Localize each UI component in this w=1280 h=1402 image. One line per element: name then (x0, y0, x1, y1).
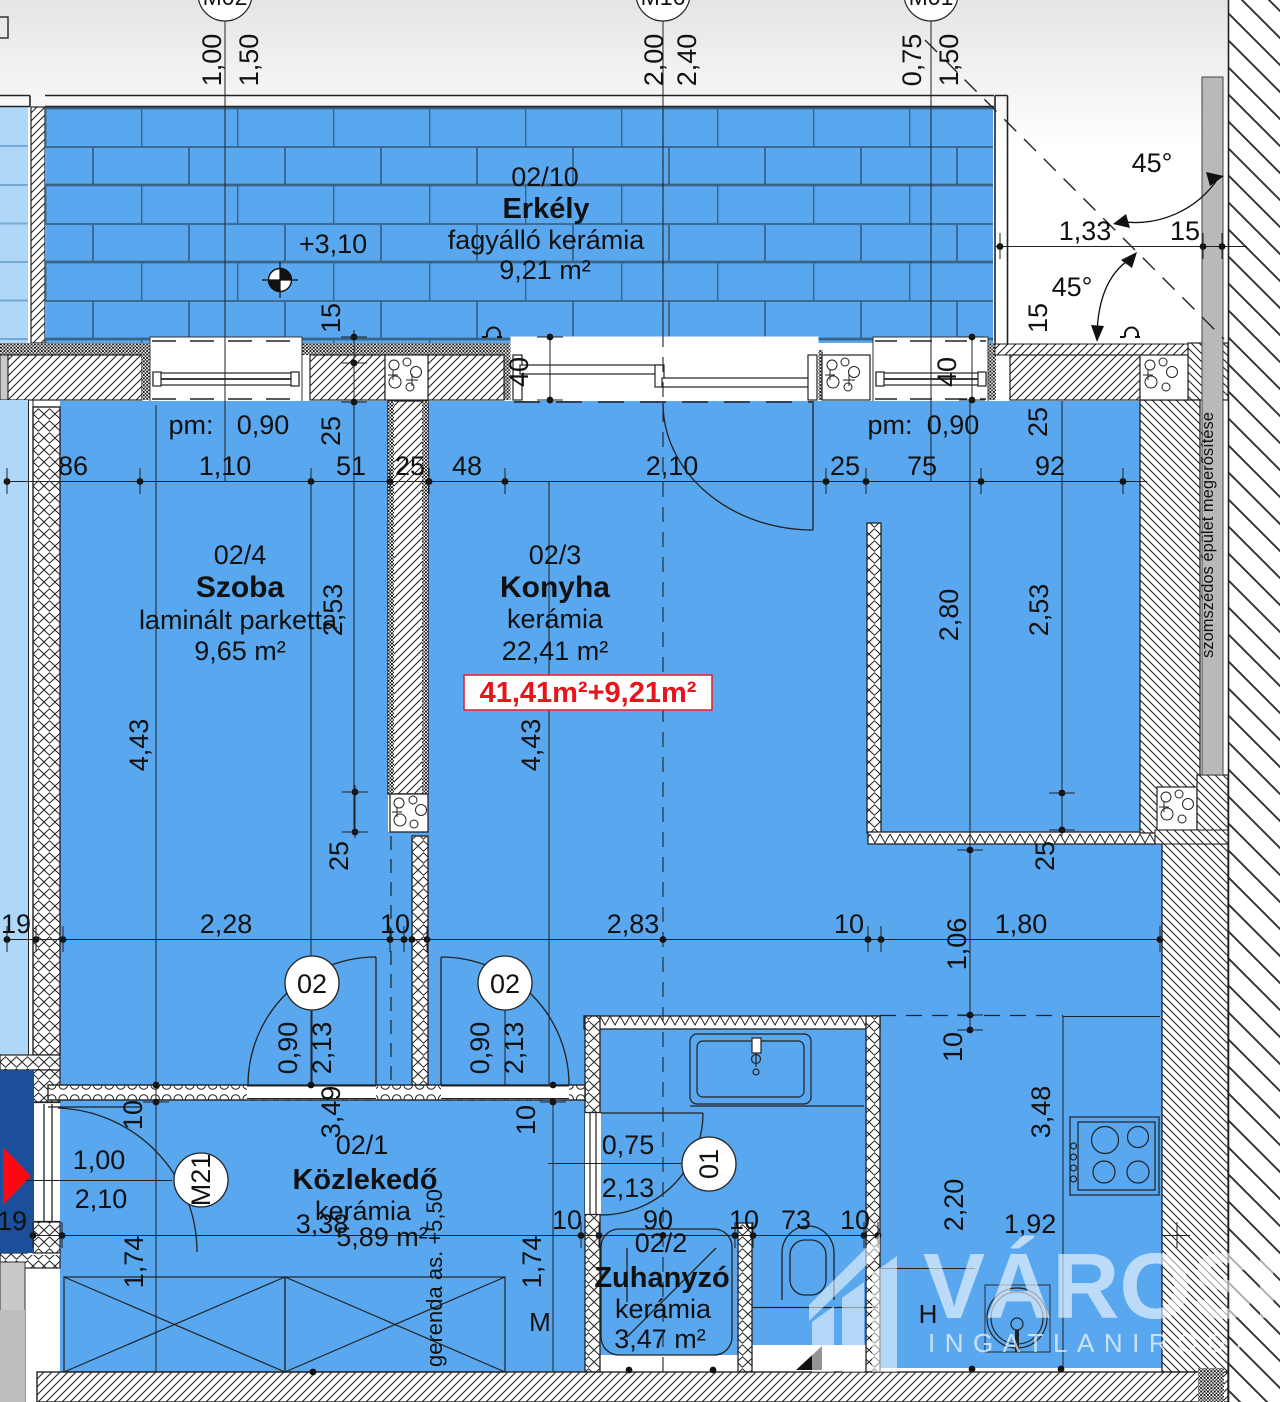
svg-text:2,83: 2,83 (607, 909, 660, 939)
svg-text:M02: M02 (203, 0, 248, 10)
svg-text:laminált parketta: laminált parketta (139, 605, 338, 635)
svg-text:22,41 m²: 22,41 m² (502, 636, 609, 666)
svg-text:2,13: 2,13 (499, 1022, 529, 1075)
svg-text:0,75: 0,75 (602, 1130, 655, 1160)
svg-text:25: 25 (395, 451, 425, 481)
svg-text:M16: M16 (641, 0, 686, 10)
svg-text:2,40: 2,40 (672, 34, 702, 87)
svg-text:45°: 45° (1052, 272, 1093, 302)
svg-text:2,80: 2,80 (934, 589, 964, 642)
svg-text:10: 10 (938, 1032, 968, 1062)
svg-text:02/3: 02/3 (529, 540, 582, 570)
svg-text:10: 10 (511, 1105, 541, 1135)
svg-text:86: 86 (58, 451, 88, 481)
svg-text:2,28: 2,28 (200, 909, 253, 939)
svg-text:3,47 m²: 3,47 m² (614, 1324, 706, 1354)
svg-text:10: 10 (380, 909, 410, 939)
svg-text:2,00: 2,00 (639, 34, 669, 87)
svg-text:kerámia: kerámia (507, 604, 604, 634)
svg-text:01: 01 (694, 1149, 724, 1179)
svg-text:0,90: 0,90 (927, 410, 980, 440)
svg-text:+3,10: +3,10 (299, 229, 367, 259)
svg-text:25: 25 (324, 841, 354, 871)
svg-text:2,53: 2,53 (318, 584, 348, 637)
svg-text:10: 10 (834, 909, 864, 939)
svg-text:1,06: 1,06 (942, 918, 972, 971)
svg-text:19: 19 (1, 909, 31, 939)
svg-text:2,20: 2,20 (939, 1179, 969, 1232)
svg-text:10: 10 (552, 1205, 582, 1235)
svg-text:2,10: 2,10 (75, 1184, 128, 1214)
svg-text:M: M (529, 1307, 551, 1337)
svg-text:1,74: 1,74 (517, 1236, 547, 1289)
svg-text:fagyálló kerámia: fagyálló kerámia (448, 225, 646, 255)
svg-text:Szoba: Szoba (196, 571, 285, 604)
svg-text:40: 40 (932, 357, 962, 387)
svg-text:0,90: 0,90 (273, 1022, 303, 1075)
svg-text:1,33: 1,33 (1059, 216, 1112, 246)
svg-text:VÁROSI: VÁROSI (923, 1234, 1280, 1338)
svg-text:15: 15 (316, 303, 346, 333)
svg-text:73: 73 (781, 1205, 811, 1235)
svg-text:92: 92 (1035, 451, 1065, 481)
svg-text:gerenda as. +5,50: gerenda as. +5,50 (422, 1189, 447, 1367)
svg-text:15: 15 (1023, 303, 1053, 333)
svg-text:M21: M21 (186, 1154, 216, 1207)
svg-text:szomszédos épület megerősítése: szomszédos épület megerősítése (1199, 412, 1217, 658)
svg-text:45°: 45° (1132, 148, 1173, 178)
svg-text:02: 02 (297, 969, 327, 999)
svg-text:1,50: 1,50 (934, 34, 964, 87)
svg-text:Konyha: Konyha (500, 571, 610, 604)
svg-text:4,43: 4,43 (516, 719, 546, 772)
svg-text:9,21 m²: 9,21 m² (499, 255, 591, 285)
svg-text:25: 25 (316, 416, 346, 446)
svg-text:0,90: 0,90 (237, 410, 290, 440)
svg-text:25: 25 (1030, 841, 1060, 871)
svg-text:2,13: 2,13 (602, 1173, 655, 1203)
svg-text:10: 10 (840, 1205, 870, 1235)
svg-text:10: 10 (729, 1205, 759, 1235)
svg-text:0,90: 0,90 (465, 1022, 495, 1075)
svg-text:2,53: 2,53 (1024, 584, 1054, 637)
svg-text:1,00: 1,00 (73, 1145, 126, 1175)
svg-text:Erkély: Erkély (502, 193, 589, 225)
svg-text:1,80: 1,80 (995, 909, 1048, 939)
svg-text:25: 25 (1023, 407, 1053, 437)
svg-text:0,75: 0,75 (897, 34, 927, 87)
svg-text:4,43: 4,43 (124, 719, 154, 772)
svg-text:kerámia: kerámia (615, 1294, 712, 1324)
svg-text:INGATLANIRODA: INGATLANIRODA (928, 1328, 1262, 1358)
svg-text:19: 19 (0, 1206, 27, 1236)
svg-text:3,48: 3,48 (1026, 1086, 1056, 1139)
svg-text:1,00: 1,00 (197, 34, 227, 87)
svg-text:51: 51 (336, 451, 366, 481)
svg-text:pm:: pm: (867, 410, 912, 440)
svg-text:1,74: 1,74 (119, 1236, 149, 1289)
svg-text:10: 10 (118, 1100, 148, 1130)
svg-text:pm:: pm: (168, 410, 213, 440)
svg-text:2,10: 2,10 (646, 451, 699, 481)
svg-text:40: 40 (504, 357, 534, 387)
svg-text:02/4: 02/4 (214, 540, 267, 570)
svg-text:9,65 m²: 9,65 m² (194, 636, 286, 666)
svg-text:M01: M01 (909, 0, 954, 10)
svg-text:3,49: 3,49 (316, 1086, 346, 1139)
svg-text:15: 15 (1170, 216, 1200, 246)
svg-text:Közlekedő: Közlekedő (292, 1164, 437, 1196)
svg-text:1,50: 1,50 (234, 34, 264, 87)
svg-text:02/10: 02/10 (511, 162, 579, 192)
svg-text:41,41m²+9,21m²: 41,41m²+9,21m² (480, 677, 697, 709)
svg-text:1,10: 1,10 (199, 451, 252, 481)
svg-text:75: 75 (907, 451, 937, 481)
svg-text:25: 25 (830, 451, 860, 481)
svg-text:Zuhanyzó: Zuhanyzó (594, 1262, 729, 1294)
svg-text:02/2: 02/2 (635, 1228, 688, 1258)
svg-text:48: 48 (452, 451, 482, 481)
svg-text:5,89 m²: 5,89 m² (336, 1222, 428, 1252)
svg-text:02: 02 (490, 969, 520, 999)
svg-text:2,13: 2,13 (307, 1022, 337, 1075)
